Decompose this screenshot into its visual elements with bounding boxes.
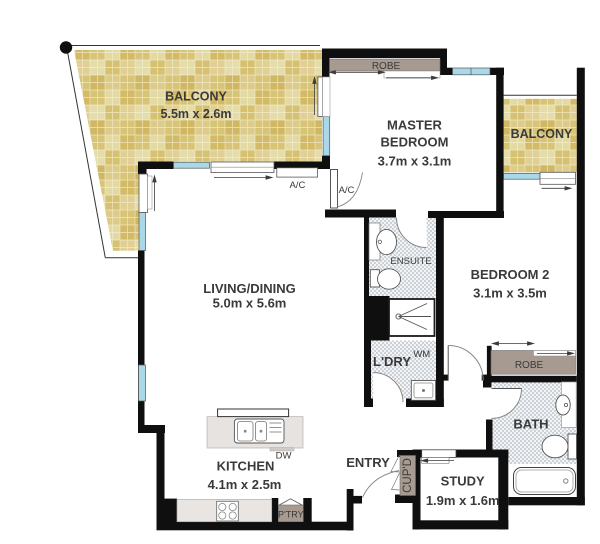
svg-text:BALCONY: BALCONY: [165, 89, 227, 103]
svg-text:3.7m x 3.1m: 3.7m x 3.1m: [378, 154, 452, 169]
svg-text:L'DRY: L'DRY: [373, 354, 411, 369]
svg-text:BATH: BATH: [513, 417, 548, 432]
svg-text:DW: DW: [276, 450, 292, 461]
svg-text:MASTER: MASTER: [387, 117, 443, 132]
svg-text:ROBE: ROBE: [515, 360, 544, 371]
svg-text:STUDY: STUDY: [441, 474, 485, 489]
svg-text:BALCONY: BALCONY: [511, 127, 573, 141]
svg-text:P'TRY: P'TRY: [278, 510, 304, 520]
svg-text:5.0m x 5.6m: 5.0m x 5.6m: [213, 296, 287, 311]
svg-text:5.5m x 2.6m: 5.5m x 2.6m: [161, 107, 232, 121]
svg-text:4.1m x 2.5m: 4.1m x 2.5m: [208, 477, 282, 492]
svg-text:ENSUITE: ENSUITE: [390, 256, 431, 267]
svg-text:A/C: A/C: [289, 180, 305, 191]
svg-text:CUP'D: CUP'D: [402, 458, 414, 493]
svg-text:ROBE: ROBE: [372, 61, 401, 72]
svg-text:1.9m x 1.6m: 1.9m x 1.6m: [426, 493, 500, 508]
svg-text:3.1m x 3.5m: 3.1m x 3.5m: [473, 286, 547, 301]
svg-text:BEDROOM: BEDROOM: [381, 135, 449, 150]
svg-text:WM: WM: [413, 349, 430, 360]
svg-text:BEDROOM 2: BEDROOM 2: [471, 267, 550, 282]
svg-text:A/C: A/C: [339, 185, 355, 196]
svg-text:LIVING/DINING: LIVING/DINING: [203, 281, 295, 296]
svg-text:KITCHEN: KITCHEN: [217, 459, 275, 474]
svg-text:ENTRY: ENTRY: [346, 455, 390, 470]
